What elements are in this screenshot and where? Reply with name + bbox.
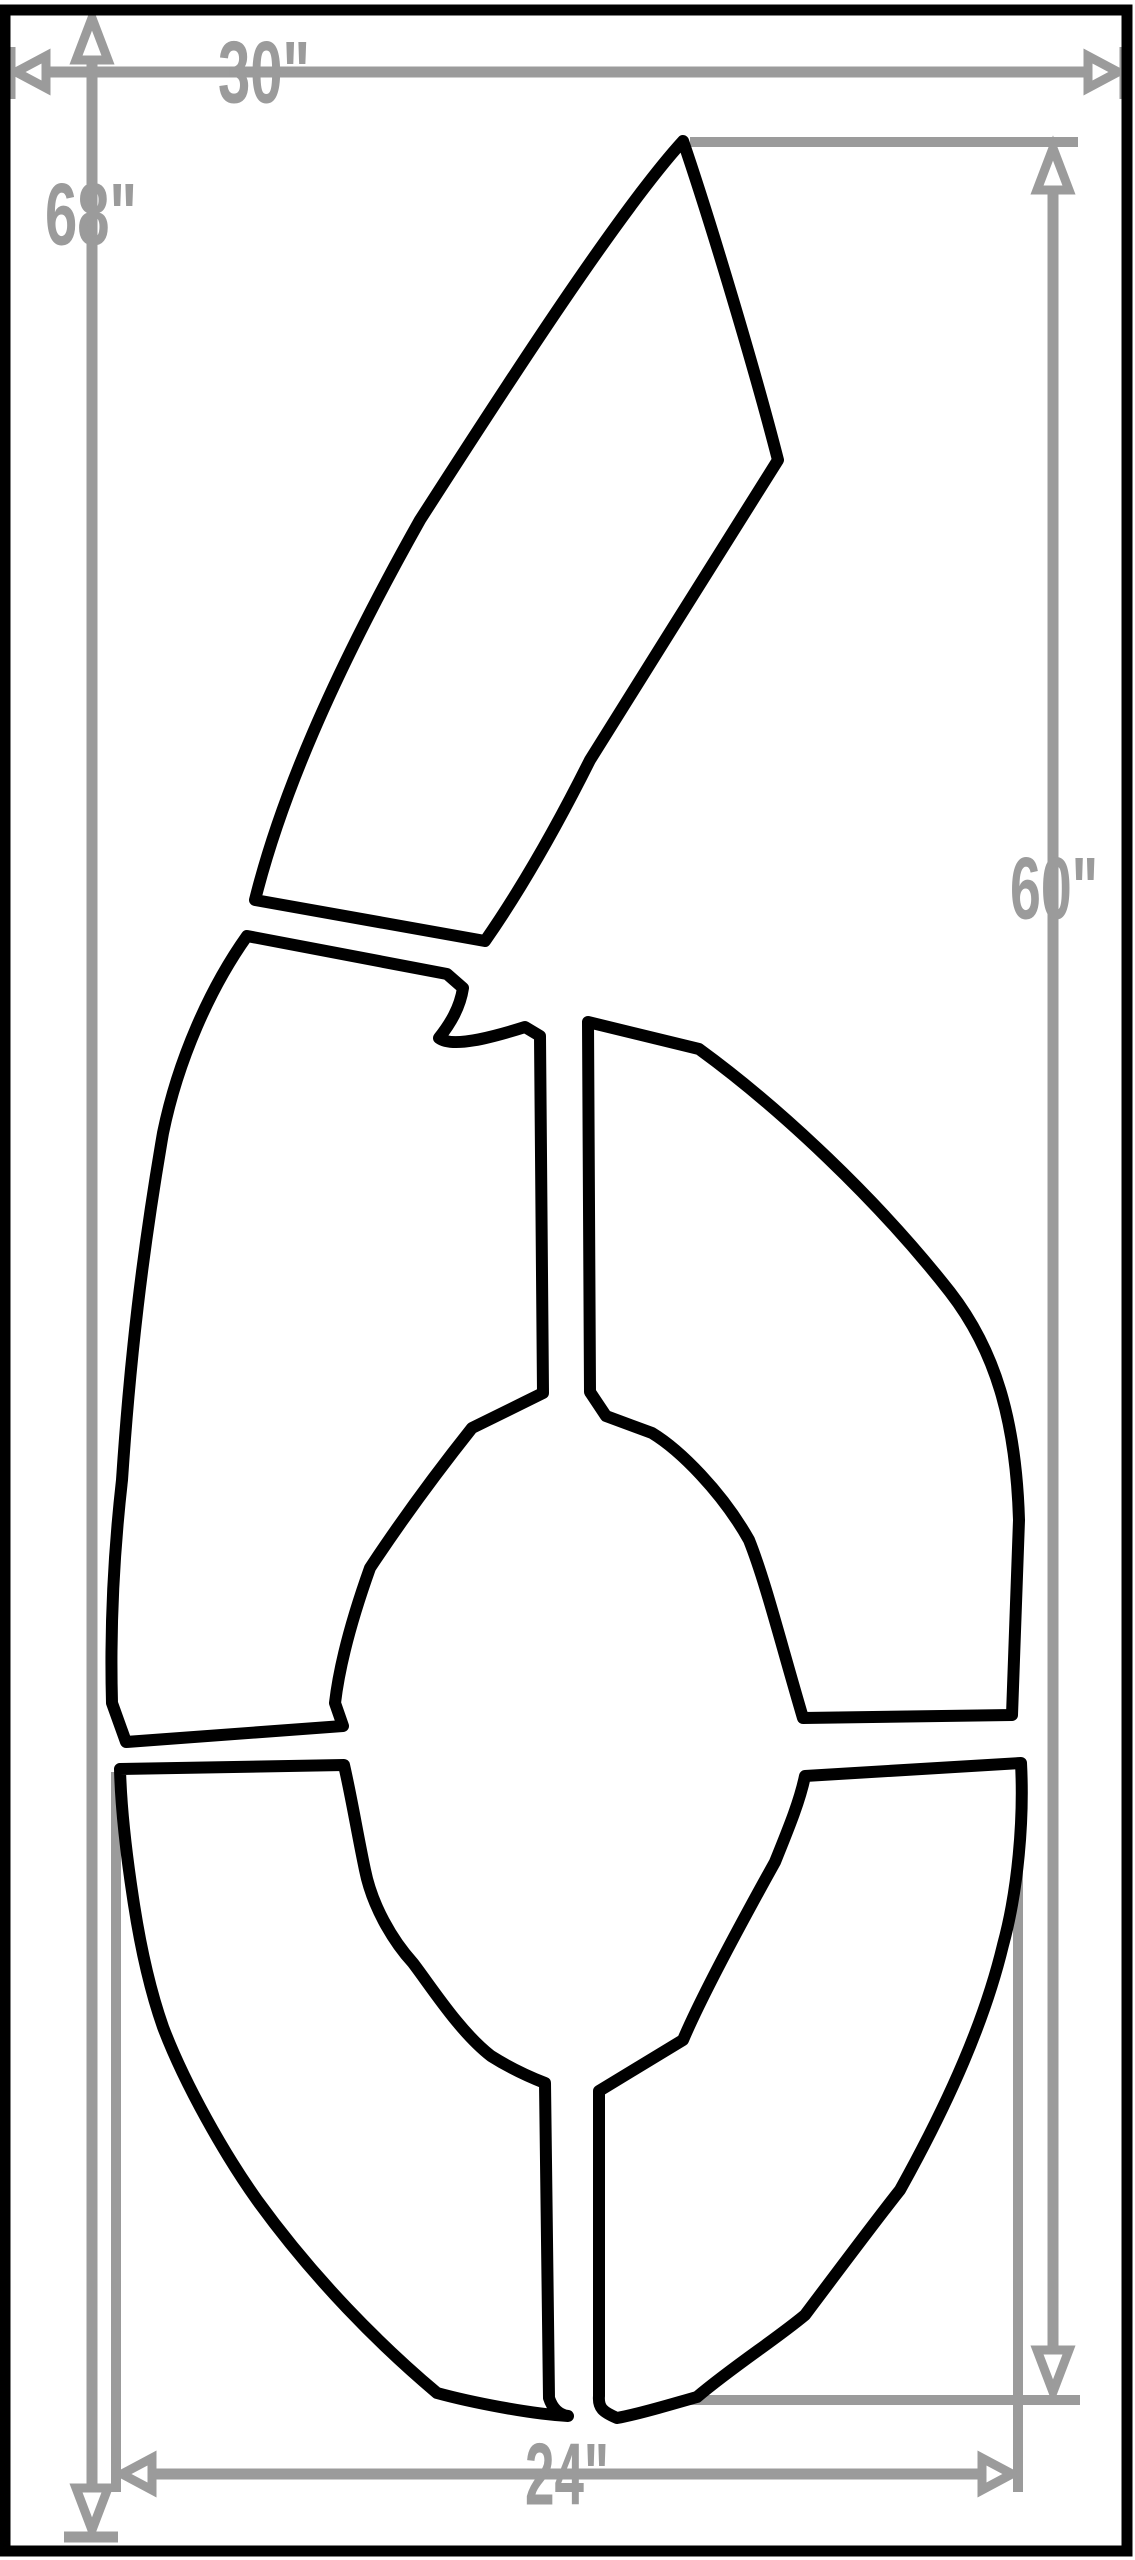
- label-overall-height: 68": [45, 165, 137, 264]
- stencil-piece-top-flag: [255, 141, 778, 941]
- stencil-digit-6: [111, 141, 1021, 2418]
- arrow-down-icon: [76, 2488, 108, 2530]
- stencil-piece-upper-right: [588, 1022, 1019, 1718]
- arrow-up-icon: [76, 18, 108, 60]
- arrow-left-icon: [16, 56, 46, 88]
- stencil-piece-lower-right: [599, 1763, 1022, 2418]
- label-digit-width: 24": [525, 2425, 609, 2524]
- stencil-piece-lower-left: [120, 1765, 568, 2416]
- arrow-right-digit-icon: [982, 2458, 1012, 2490]
- label-overall-width: 30": [218, 23, 310, 122]
- stencil-diagram-page: 30" 68" 60" 24": [0, 0, 1135, 2560]
- label-digit-height: 60": [1010, 839, 1098, 938]
- arrow-right-icon: [1088, 56, 1118, 88]
- arrow-left-digit-icon: [122, 2458, 152, 2490]
- arrow-down-digit-icon: [1037, 2350, 1069, 2392]
- stencil-piece-upper-left: [111, 936, 543, 1742]
- arrow-up-digit-icon: [1037, 148, 1069, 190]
- stencil-diagram: 30" 68" 60" 24": [0, 0, 1135, 2560]
